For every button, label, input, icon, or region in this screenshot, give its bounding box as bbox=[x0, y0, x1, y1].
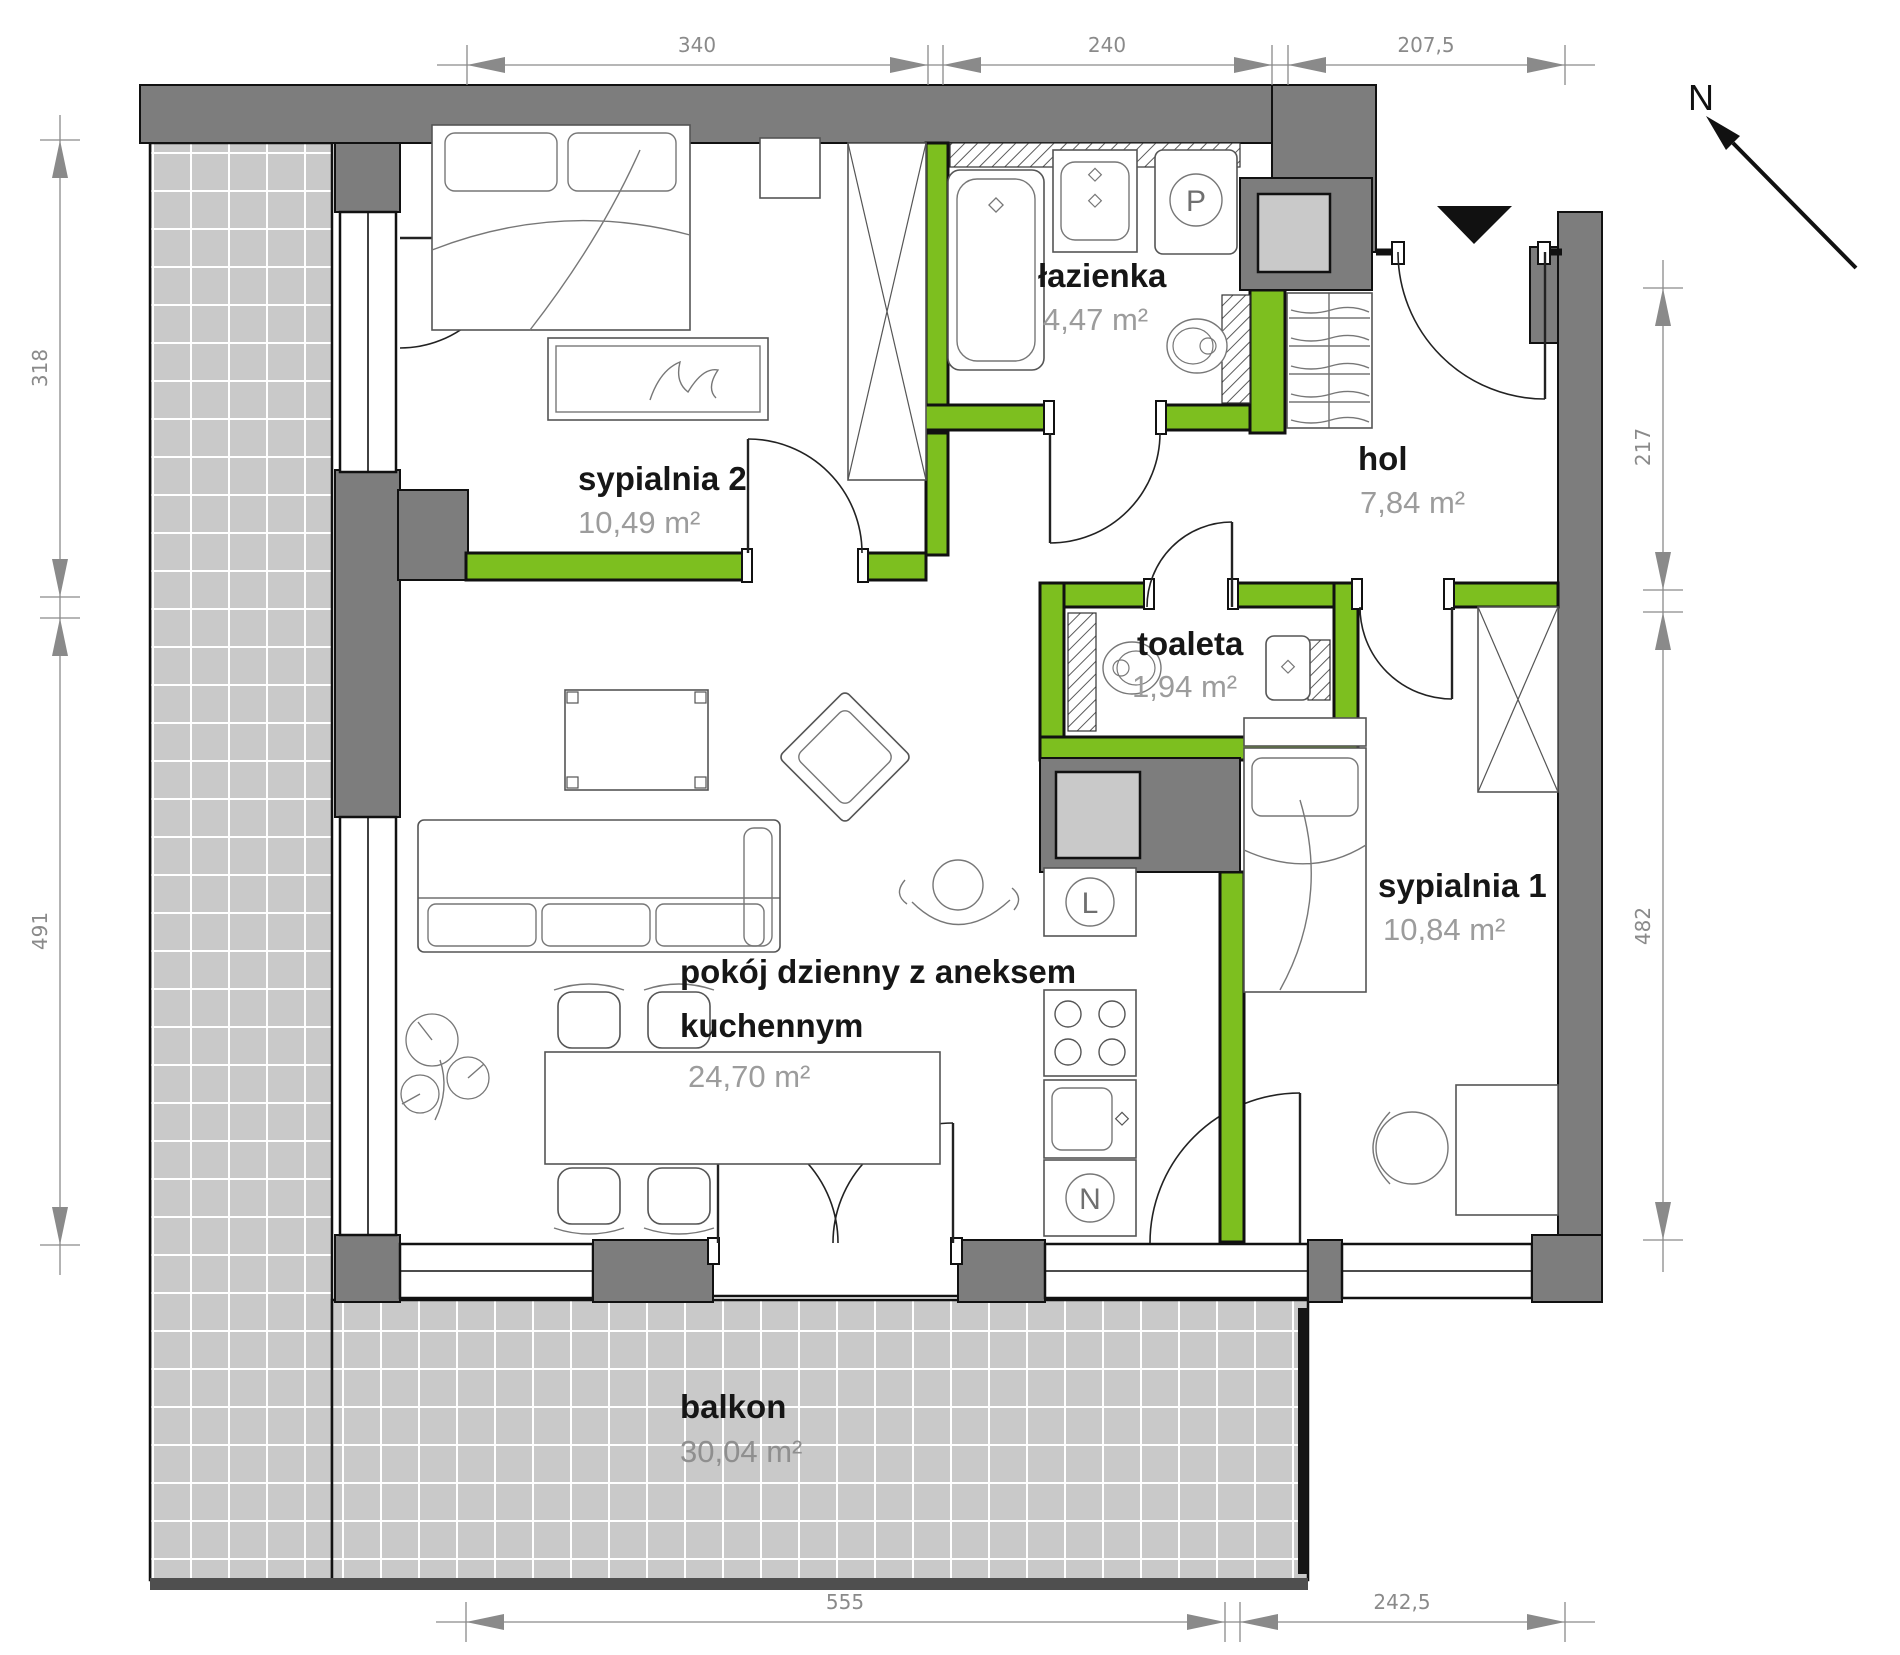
dim-left-2: 491 bbox=[28, 912, 52, 950]
wall-right bbox=[1558, 212, 1602, 1302]
door-toaleta bbox=[1147, 522, 1232, 607]
wall-pier-2 bbox=[958, 1240, 1045, 1302]
area-sypialnia2: 10,49 m² bbox=[578, 505, 700, 540]
bed-sypialnia2 bbox=[432, 125, 690, 330]
balcony-edge bbox=[150, 1578, 1308, 1590]
north-arrow: N bbox=[1688, 77, 1856, 268]
dim-top-1: 340 bbox=[678, 33, 716, 57]
north-arrow-tail bbox=[1733, 143, 1856, 268]
label-hol: hol bbox=[1358, 440, 1407, 477]
person-armchair bbox=[899, 860, 1018, 925]
area-living: 24,70 m² bbox=[688, 1059, 810, 1094]
entrance-marker-triangle bbox=[1437, 206, 1512, 244]
plant-monstera bbox=[401, 1014, 489, 1120]
door-sypialnia1 bbox=[1360, 607, 1452, 699]
wall-green-sypialnia2-bottom bbox=[466, 553, 748, 580]
wall-green-kitchen bbox=[1220, 872, 1244, 1242]
wall-pier-1 bbox=[593, 1240, 713, 1302]
dining-chair bbox=[558, 1168, 620, 1224]
hatch-toaleta-left bbox=[1068, 613, 1096, 731]
label-lazienka: łazienka bbox=[1038, 257, 1167, 294]
bathroom-sink bbox=[1053, 150, 1137, 252]
window-sypialnia1-bottom bbox=[1342, 1244, 1532, 1298]
dim-top: 340 240 207,5 bbox=[437, 33, 1595, 85]
north-label: N bbox=[1688, 77, 1714, 118]
balcony-railing-end bbox=[1298, 1308, 1308, 1574]
dresser-with-plant bbox=[548, 338, 768, 420]
shaft-top bbox=[1240, 178, 1372, 290]
desk-chair bbox=[1376, 1112, 1448, 1184]
label-sypialnia1: sypialnia 1 bbox=[1378, 867, 1547, 904]
hol-wardrobe bbox=[1287, 293, 1372, 428]
wardrobe-sypialnia2 bbox=[848, 143, 926, 480]
desk bbox=[1373, 1085, 1558, 1215]
label-sypialnia2: sypialnia 2 bbox=[578, 460, 747, 497]
label-living-line2: kuchennym bbox=[680, 1007, 863, 1044]
dim-right-2: 482 bbox=[1631, 907, 1655, 945]
toaleta-sink bbox=[1266, 636, 1310, 700]
wall-green-sypialnia2-lazienka bbox=[926, 143, 948, 433]
dim-right: 217 482 bbox=[1631, 260, 1683, 1272]
wardrobe-sypialnia1 bbox=[1478, 607, 1558, 792]
dim-right-1: 217 bbox=[1631, 428, 1655, 466]
dining-chair bbox=[558, 992, 620, 1048]
dim-top-2: 240 bbox=[1088, 33, 1126, 57]
dim-left: 318 491 bbox=[28, 115, 80, 1275]
dim-left-1: 318 bbox=[28, 349, 52, 387]
hatch-toaleta-sink bbox=[1308, 640, 1330, 700]
furniture-sypialnia2 bbox=[432, 125, 926, 480]
shaft-kitchen bbox=[1040, 758, 1240, 872]
dishwasher: N bbox=[1044, 1160, 1136, 1236]
dishwasher-letter: N bbox=[1079, 1183, 1101, 1216]
toilet-lazienka bbox=[1167, 319, 1227, 373]
area-toaleta: 1,94 m² bbox=[1132, 669, 1237, 704]
wall-green-hol-sypialnia1 bbox=[1450, 583, 1558, 607]
washing-machine: P bbox=[1155, 150, 1237, 254]
area-sypialnia1: 10,84 m² bbox=[1383, 912, 1505, 947]
area-balkon: 30,04 m² bbox=[680, 1434, 802, 1469]
label-toaleta: toaleta bbox=[1137, 625, 1244, 662]
area-lazienka: 4,47 m² bbox=[1043, 302, 1148, 337]
stove bbox=[1044, 990, 1136, 1076]
coffee-table bbox=[565, 690, 708, 790]
window-sypialnia2-left bbox=[340, 212, 396, 472]
bathtub bbox=[948, 170, 1044, 370]
sofa bbox=[418, 820, 780, 952]
dim-bottom-1: 555 bbox=[826, 1590, 864, 1614]
wall-green-lazienka-right bbox=[1250, 290, 1285, 433]
floor-plan-page: P bbox=[0, 0, 1900, 1655]
nightstand bbox=[760, 138, 820, 198]
kitchen: L N bbox=[1044, 868, 1136, 1236]
wall-top bbox=[140, 85, 1272, 143]
area-hol: 7,84 m² bbox=[1360, 485, 1465, 520]
window-living-left bbox=[340, 817, 396, 1235]
label-balkon: balkon bbox=[680, 1388, 786, 1425]
dim-bottom: 555 242,5 bbox=[436, 1590, 1595, 1642]
kitchen-sink bbox=[1044, 1080, 1136, 1158]
fridge: L bbox=[1044, 868, 1136, 936]
armchair-diamond bbox=[779, 691, 912, 824]
washer-letter: P bbox=[1186, 185, 1206, 218]
door-sypialnia2 bbox=[748, 439, 862, 553]
fridge-letter: L bbox=[1082, 887, 1099, 920]
wall-stub-living bbox=[398, 490, 468, 580]
dim-top-3: 207,5 bbox=[1397, 33, 1454, 57]
floor-plan-drawing: P bbox=[0, 0, 1900, 1655]
door-lazienka bbox=[1050, 433, 1160, 543]
bed-sypialnia1 bbox=[1244, 718, 1366, 992]
window-living-bottom-left bbox=[400, 1244, 593, 1298]
dim-bottom-2: 242,5 bbox=[1373, 1590, 1430, 1614]
dining-chair bbox=[648, 1168, 710, 1224]
label-living-line1: pokój dzienny z aneksem bbox=[680, 953, 1076, 990]
